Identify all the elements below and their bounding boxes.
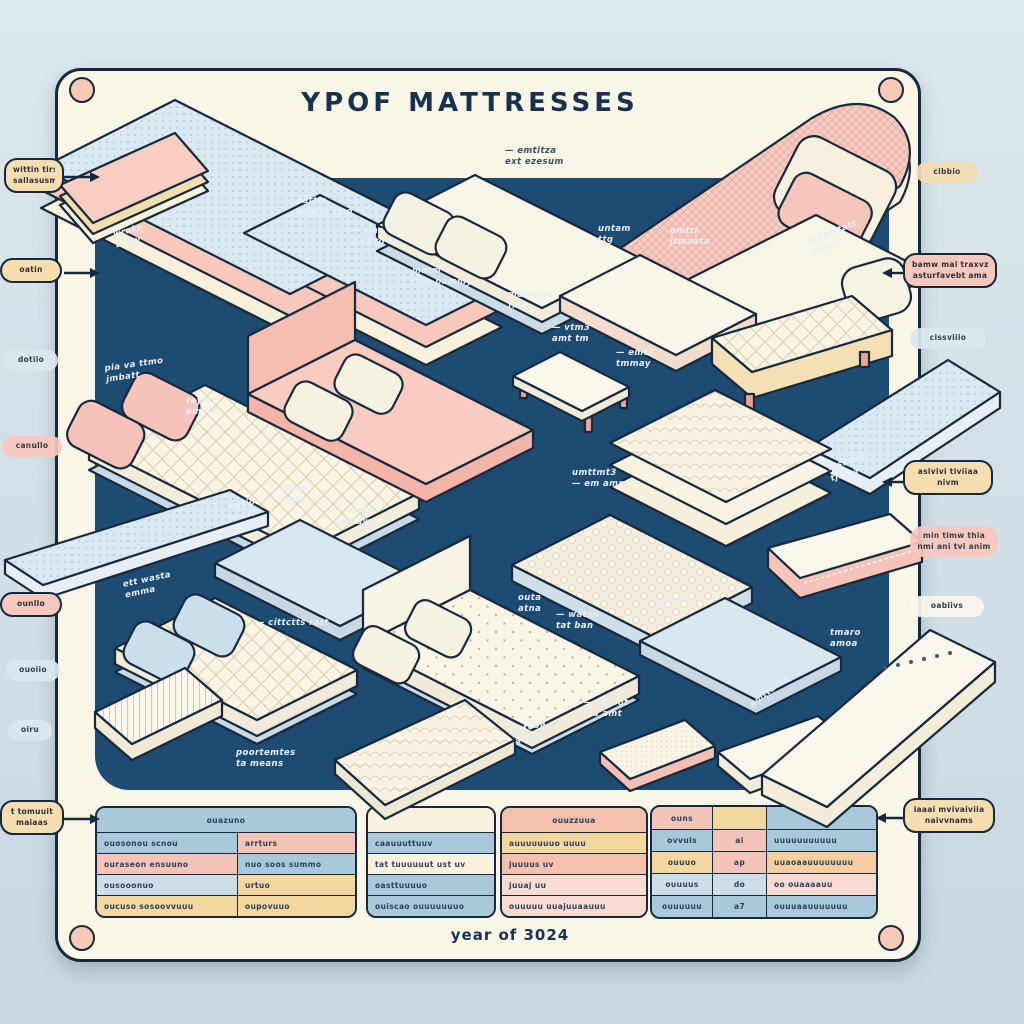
mattress-label: tmaroamoa [830,628,861,650]
callout-pill: oiru [8,720,52,741]
corner-screw [69,77,95,103]
callout-pill: t tomuuitmaiaas [0,800,64,835]
poster-title: YPOF MATTRESSES [170,88,770,118]
table-cell: uuaoaauuuuuuuu [766,851,876,873]
table-cell: oupovuuo [237,895,355,916]
table-cell: oucuso sosoovvuuu [97,895,237,916]
table-cell: ouosonou scnou [97,832,237,853]
table-cell [766,807,876,829]
legend-table-1: ouazuno ouosonou scnou arrturs ouraseon … [95,806,357,918]
table-cell: ap [712,851,766,873]
table-cell: ouuzzuua [502,808,646,832]
table-cell: caauuuttuuv [368,832,494,853]
callout-pill: canullo [2,436,62,457]
table-cell: nuo soos summo [237,853,355,874]
callout-pill: dotiio [4,350,58,371]
corner-screw [69,925,95,951]
callout-pill: min timw thianmi ani tvi anim [910,526,998,557]
callout-pill: bamw mai traxvzasturfavebt ama [903,253,997,288]
table-cell: ovvuis [652,829,712,851]
mattress-label: matmtma pammy [412,266,472,288]
mattress-label: untamttg [598,224,631,246]
table-cell: juuaj uu [502,874,646,895]
mattress-label: poortemtesta means [236,748,296,770]
callout-pill: ouoiio [6,660,60,681]
year-caption: year of 3024 [390,926,630,944]
table-cell: ouuuuuu [652,895,712,917]
corner-screw [878,77,904,103]
mattress-label: — watsntat ban [556,610,599,632]
mattress-label: umttmt3— em amn [572,468,625,490]
table-cell [712,807,766,829]
table-cell: oasttuuuuo [368,874,494,895]
callout-pill: asivivi tiviiaanivm [903,460,993,495]
table-cell: ouns [652,807,712,829]
mattress-label: — tiazgaaitd lo [352,226,398,248]
mattress-label: — setsot(ta amt [584,698,629,720]
legend-table-2: caauuuttuuv tat tuuuuuut ust uv oasttuuu… [366,806,496,918]
table-cell: a7 [712,895,766,917]
table-cell: uuuuuuuuuuu [766,829,876,851]
mattress-label: — cittctts ratt [256,618,329,629]
mattress-label: uattmaaatta tmo [296,196,353,218]
callout-pill: oatin [0,258,62,283]
table-cell: juuuus uv [502,853,646,874]
table-cell: ouuuaauuuuuuu [766,895,876,917]
table-cell: ouuuo [652,851,712,873]
corner-screw [878,925,904,951]
table-cell: auuuuuuuo uuuu [502,832,646,853]
table-cell: urtuo [237,874,355,895]
mattress-label: — emtitzaext ezesum [505,146,564,168]
table-cell: ouiscao ouuuuuuuo [368,895,494,916]
table-cell: arrturs [237,832,355,853]
table-cell: ouuuuu uuajuuaauuu [502,895,646,916]
table-cell: oo ouaaaauu [766,873,876,895]
callout-pill: ounllo [0,592,62,617]
table-cell: ai [712,829,766,851]
mattress-label: — emt3tmmay [616,348,654,370]
callout-pill: oabiivs [910,596,984,617]
mattress-label: matmumfmo [508,290,553,312]
table-cell: tat tuuuuuut ust uv [368,853,494,874]
mattress-label: — vtm3amt tm [552,323,590,345]
callout-pill: cissviiio [910,328,986,349]
callout-pill: cibbio [916,162,978,183]
table-cell: ouuuus [652,873,712,895]
table-cell [368,808,494,832]
table-cell: do [712,873,766,895]
table-cell: ouazuno [97,808,355,832]
mattress-label: vntsoamta [280,484,309,506]
callout-pill: wittin tirssallasusm [4,158,64,193]
mattress-label: teyttvamvio [186,396,217,418]
mattress-label: outaatna [518,593,541,615]
callout-pill: iaaai mvivaiviianaivvnams [903,798,995,833]
table-cell: ousooonuo [97,874,237,895]
table-cell: ouraseon ensuuno [97,853,237,874]
mattress-label: — matstan awry [336,506,381,528]
infographic-page: YPOF MATTRESSES ouazuno ouosonou scnou a… [0,0,1024,1024]
legend-table-4: ouns ovvuis ai uuuuuuuuuuu ouuuo ap uuao… [650,805,878,919]
legend-table-3: ouuzzuua auuuuuuuo uuuu juuuus uv juuaj … [500,806,648,918]
mattress-label: emtrrjtmaata [670,226,710,248]
